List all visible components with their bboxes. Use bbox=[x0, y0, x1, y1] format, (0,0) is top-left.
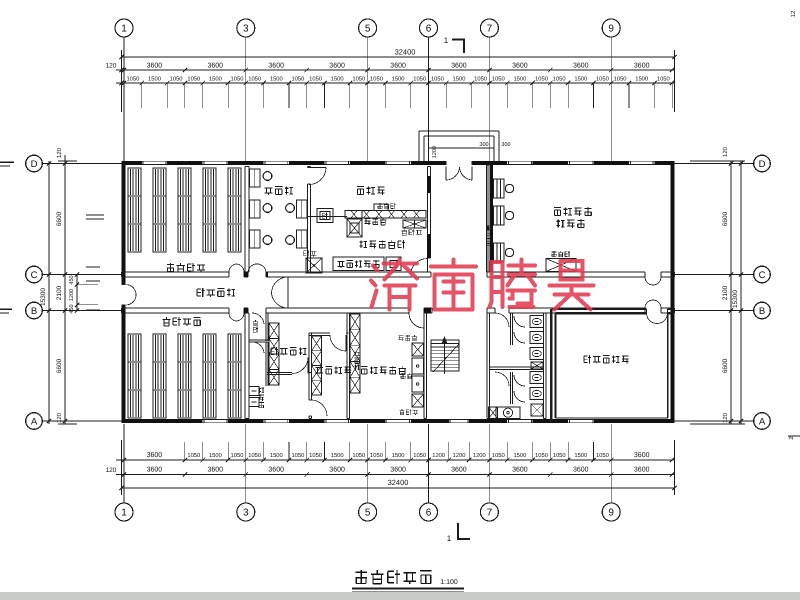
svg-text:1200: 1200 bbox=[69, 289, 75, 301]
svg-text:32400: 32400 bbox=[388, 478, 409, 487]
svg-text:32400: 32400 bbox=[395, 48, 416, 57]
svg-text:1050: 1050 bbox=[492, 76, 505, 83]
svg-text:12: 12 bbox=[790, 10, 797, 17]
svg-text:450: 450 bbox=[69, 304, 75, 313]
svg-text:C: C bbox=[31, 270, 38, 281]
svg-text:3600: 3600 bbox=[208, 63, 224, 70]
svg-text:1: 1 bbox=[447, 534, 452, 543]
svg-text:3600: 3600 bbox=[390, 467, 406, 474]
svg-text:1050: 1050 bbox=[553, 452, 566, 459]
svg-text:1500: 1500 bbox=[574, 452, 587, 459]
svg-text:1050: 1050 bbox=[187, 452, 200, 459]
svg-text:1050: 1050 bbox=[657, 76, 670, 83]
svg-text:450: 450 bbox=[69, 275, 75, 284]
svg-text:1050: 1050 bbox=[187, 76, 200, 83]
svg-text:1500: 1500 bbox=[209, 76, 222, 83]
svg-text:1050: 1050 bbox=[492, 452, 505, 459]
svg-text:3600: 3600 bbox=[451, 467, 467, 474]
svg-text:1500: 1500 bbox=[392, 452, 405, 459]
svg-text:15300: 15300 bbox=[732, 290, 739, 308]
svg-text:120: 120 bbox=[56, 147, 63, 158]
svg-text:D: D bbox=[31, 159, 38, 170]
svg-text:1050: 1050 bbox=[413, 452, 426, 459]
svg-text:3600: 3600 bbox=[208, 467, 224, 474]
svg-text:B: B bbox=[759, 306, 765, 317]
svg-text:1050: 1050 bbox=[309, 452, 322, 459]
svg-text:1050: 1050 bbox=[352, 76, 365, 83]
svg-text:3: 3 bbox=[243, 24, 249, 35]
svg-text:1500: 1500 bbox=[392, 76, 405, 83]
svg-text:5: 5 bbox=[365, 24, 371, 35]
svg-text:1500: 1500 bbox=[513, 452, 526, 459]
svg-text:6600: 6600 bbox=[56, 358, 63, 373]
svg-text:9: 9 bbox=[608, 508, 614, 519]
svg-text:1050: 1050 bbox=[126, 76, 139, 83]
svg-text:A: A bbox=[759, 417, 766, 428]
svg-text:1200: 1200 bbox=[432, 452, 445, 459]
svg-text:1200: 1200 bbox=[473, 452, 486, 459]
svg-text:3600: 3600 bbox=[512, 63, 528, 70]
svg-text:120: 120 bbox=[106, 63, 117, 70]
svg-text:A: A bbox=[31, 417, 38, 428]
svg-text:9: 9 bbox=[608, 24, 614, 35]
svg-text:1: 1 bbox=[121, 508, 127, 519]
svg-text:300: 300 bbox=[501, 142, 510, 148]
svg-text:1050: 1050 bbox=[431, 76, 444, 83]
svg-text:3600: 3600 bbox=[147, 63, 163, 70]
svg-text:3600: 3600 bbox=[147, 467, 163, 474]
svg-text:D: D bbox=[759, 159, 766, 170]
svg-text:120: 120 bbox=[56, 412, 63, 423]
svg-text:3600: 3600 bbox=[329, 467, 345, 474]
svg-text:3600: 3600 bbox=[268, 63, 284, 70]
svg-text:1500: 1500 bbox=[513, 76, 526, 83]
svg-text:B: B bbox=[31, 306, 37, 317]
svg-text:2100: 2100 bbox=[722, 285, 729, 300]
svg-text:3: 3 bbox=[243, 508, 249, 519]
svg-text:1500: 1500 bbox=[270, 452, 283, 459]
svg-text:1050: 1050 bbox=[248, 452, 261, 459]
svg-text:1500: 1500 bbox=[148, 76, 161, 83]
svg-text:3600: 3600 bbox=[268, 467, 284, 474]
svg-text:2100: 2100 bbox=[56, 285, 63, 300]
svg-text:1050: 1050 bbox=[309, 76, 322, 83]
svg-text:1500: 1500 bbox=[270, 76, 283, 83]
svg-text:1500: 1500 bbox=[331, 452, 344, 459]
svg-text:1500: 1500 bbox=[635, 76, 648, 83]
svg-text:3600: 3600 bbox=[634, 467, 650, 474]
svg-text:1200: 1200 bbox=[432, 146, 438, 158]
svg-text:1500: 1500 bbox=[331, 76, 344, 83]
svg-text:3600: 3600 bbox=[634, 452, 650, 459]
svg-text:1050: 1050 bbox=[170, 76, 183, 83]
svg-text:1050: 1050 bbox=[413, 76, 426, 83]
svg-text:3600: 3600 bbox=[451, 63, 467, 70]
svg-text:3600: 3600 bbox=[573, 63, 589, 70]
svg-text:1050: 1050 bbox=[352, 452, 365, 459]
svg-text:1050: 1050 bbox=[596, 452, 609, 459]
svg-text:C: C bbox=[759, 270, 766, 281]
svg-text:6: 6 bbox=[426, 508, 432, 519]
svg-text:1050: 1050 bbox=[596, 76, 609, 83]
svg-text:5: 5 bbox=[365, 508, 371, 519]
svg-text:1050: 1050 bbox=[248, 76, 261, 83]
svg-text:7: 7 bbox=[487, 24, 493, 35]
svg-text:1050: 1050 bbox=[370, 76, 383, 83]
svg-text:3600: 3600 bbox=[573, 467, 589, 474]
svg-text:1050: 1050 bbox=[553, 76, 566, 83]
svg-text:1050: 1050 bbox=[231, 76, 244, 83]
svg-text:6600: 6600 bbox=[722, 211, 729, 226]
svg-text:15300: 15300 bbox=[40, 288, 47, 306]
svg-text:1500: 1500 bbox=[574, 76, 587, 83]
svg-text:3600: 3600 bbox=[390, 63, 406, 70]
svg-text:1500: 1500 bbox=[209, 452, 222, 459]
svg-text:1050: 1050 bbox=[370, 452, 383, 459]
svg-text:6: 6 bbox=[426, 24, 432, 35]
svg-text:1050: 1050 bbox=[614, 76, 627, 83]
svg-text:1050: 1050 bbox=[535, 76, 548, 83]
svg-text:1050: 1050 bbox=[291, 76, 304, 83]
svg-text:1050: 1050 bbox=[231, 452, 244, 459]
svg-text:1500: 1500 bbox=[453, 76, 466, 83]
svg-text:1050: 1050 bbox=[291, 452, 304, 459]
svg-text:1050: 1050 bbox=[535, 452, 548, 459]
svg-text:6600: 6600 bbox=[56, 211, 63, 226]
svg-text:3600: 3600 bbox=[147, 452, 163, 459]
svg-text:1050: 1050 bbox=[474, 76, 487, 83]
svg-text:7: 7 bbox=[487, 508, 493, 519]
svg-text:3600: 3600 bbox=[634, 63, 650, 70]
svg-text:120: 120 bbox=[722, 412, 729, 423]
svg-text:300: 300 bbox=[479, 142, 488, 148]
svg-text:3600: 3600 bbox=[512, 467, 528, 474]
svg-text:1: 1 bbox=[121, 24, 127, 35]
svg-text:6600: 6600 bbox=[722, 358, 729, 373]
svg-text:1200: 1200 bbox=[453, 452, 466, 459]
svg-text:3600: 3600 bbox=[329, 63, 345, 70]
svg-text:120: 120 bbox=[106, 467, 117, 474]
svg-text:1: 1 bbox=[444, 36, 449, 45]
svg-text:1:100: 1:100 bbox=[440, 579, 458, 586]
svg-text:120: 120 bbox=[722, 146, 729, 157]
